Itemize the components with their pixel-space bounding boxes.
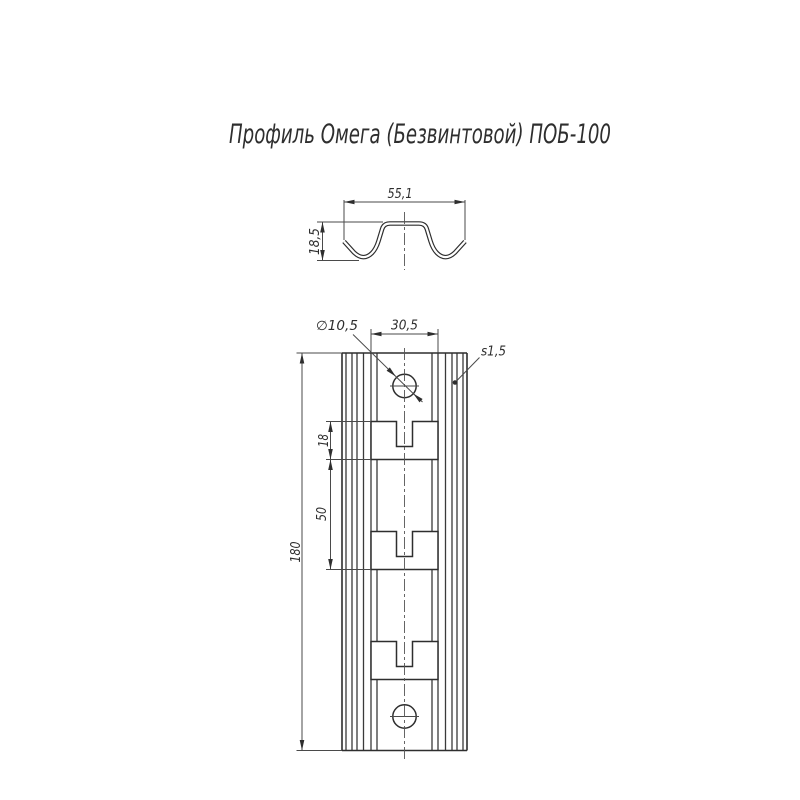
slot-pitch-dimension: 50 (315, 460, 371, 570)
leader-line (413, 394, 422, 402)
front-view: 180 30,5 18 50 ∅10,5 (289, 319, 506, 760)
thickness-callout: s1,5 (453, 345, 506, 385)
flange-width-dimension: 30,5 (371, 319, 438, 353)
drawing-title: Профиль Омега (Безвинтовой) ПОБ-100 (229, 119, 611, 150)
flange-width-label: 30,5 (391, 319, 418, 334)
leader-line (353, 335, 396, 377)
leader-dot (453, 380, 458, 385)
slot-height-label: 18 (317, 434, 332, 447)
hole-diameter-label: ∅10,5 (316, 319, 358, 334)
thickness-label: s1,5 (481, 345, 506, 360)
section-view: 55,1 18,5 (308, 187, 465, 270)
slot-pitch-label: 50 (315, 507, 330, 521)
length-dimension: 180 (289, 353, 342, 751)
section-height-label: 18,5 (308, 228, 323, 255)
section-width-label: 55,1 (388, 187, 413, 202)
drawing-canvas: Профиль Омега (Безвинтовой) ПОБ-100 55,1… (0, 0, 800, 800)
length-label: 180 (289, 542, 304, 563)
drawing-sheet: Профиль Омега (Безвинтовой) ПОБ-100 55,1… (0, 0, 800, 800)
